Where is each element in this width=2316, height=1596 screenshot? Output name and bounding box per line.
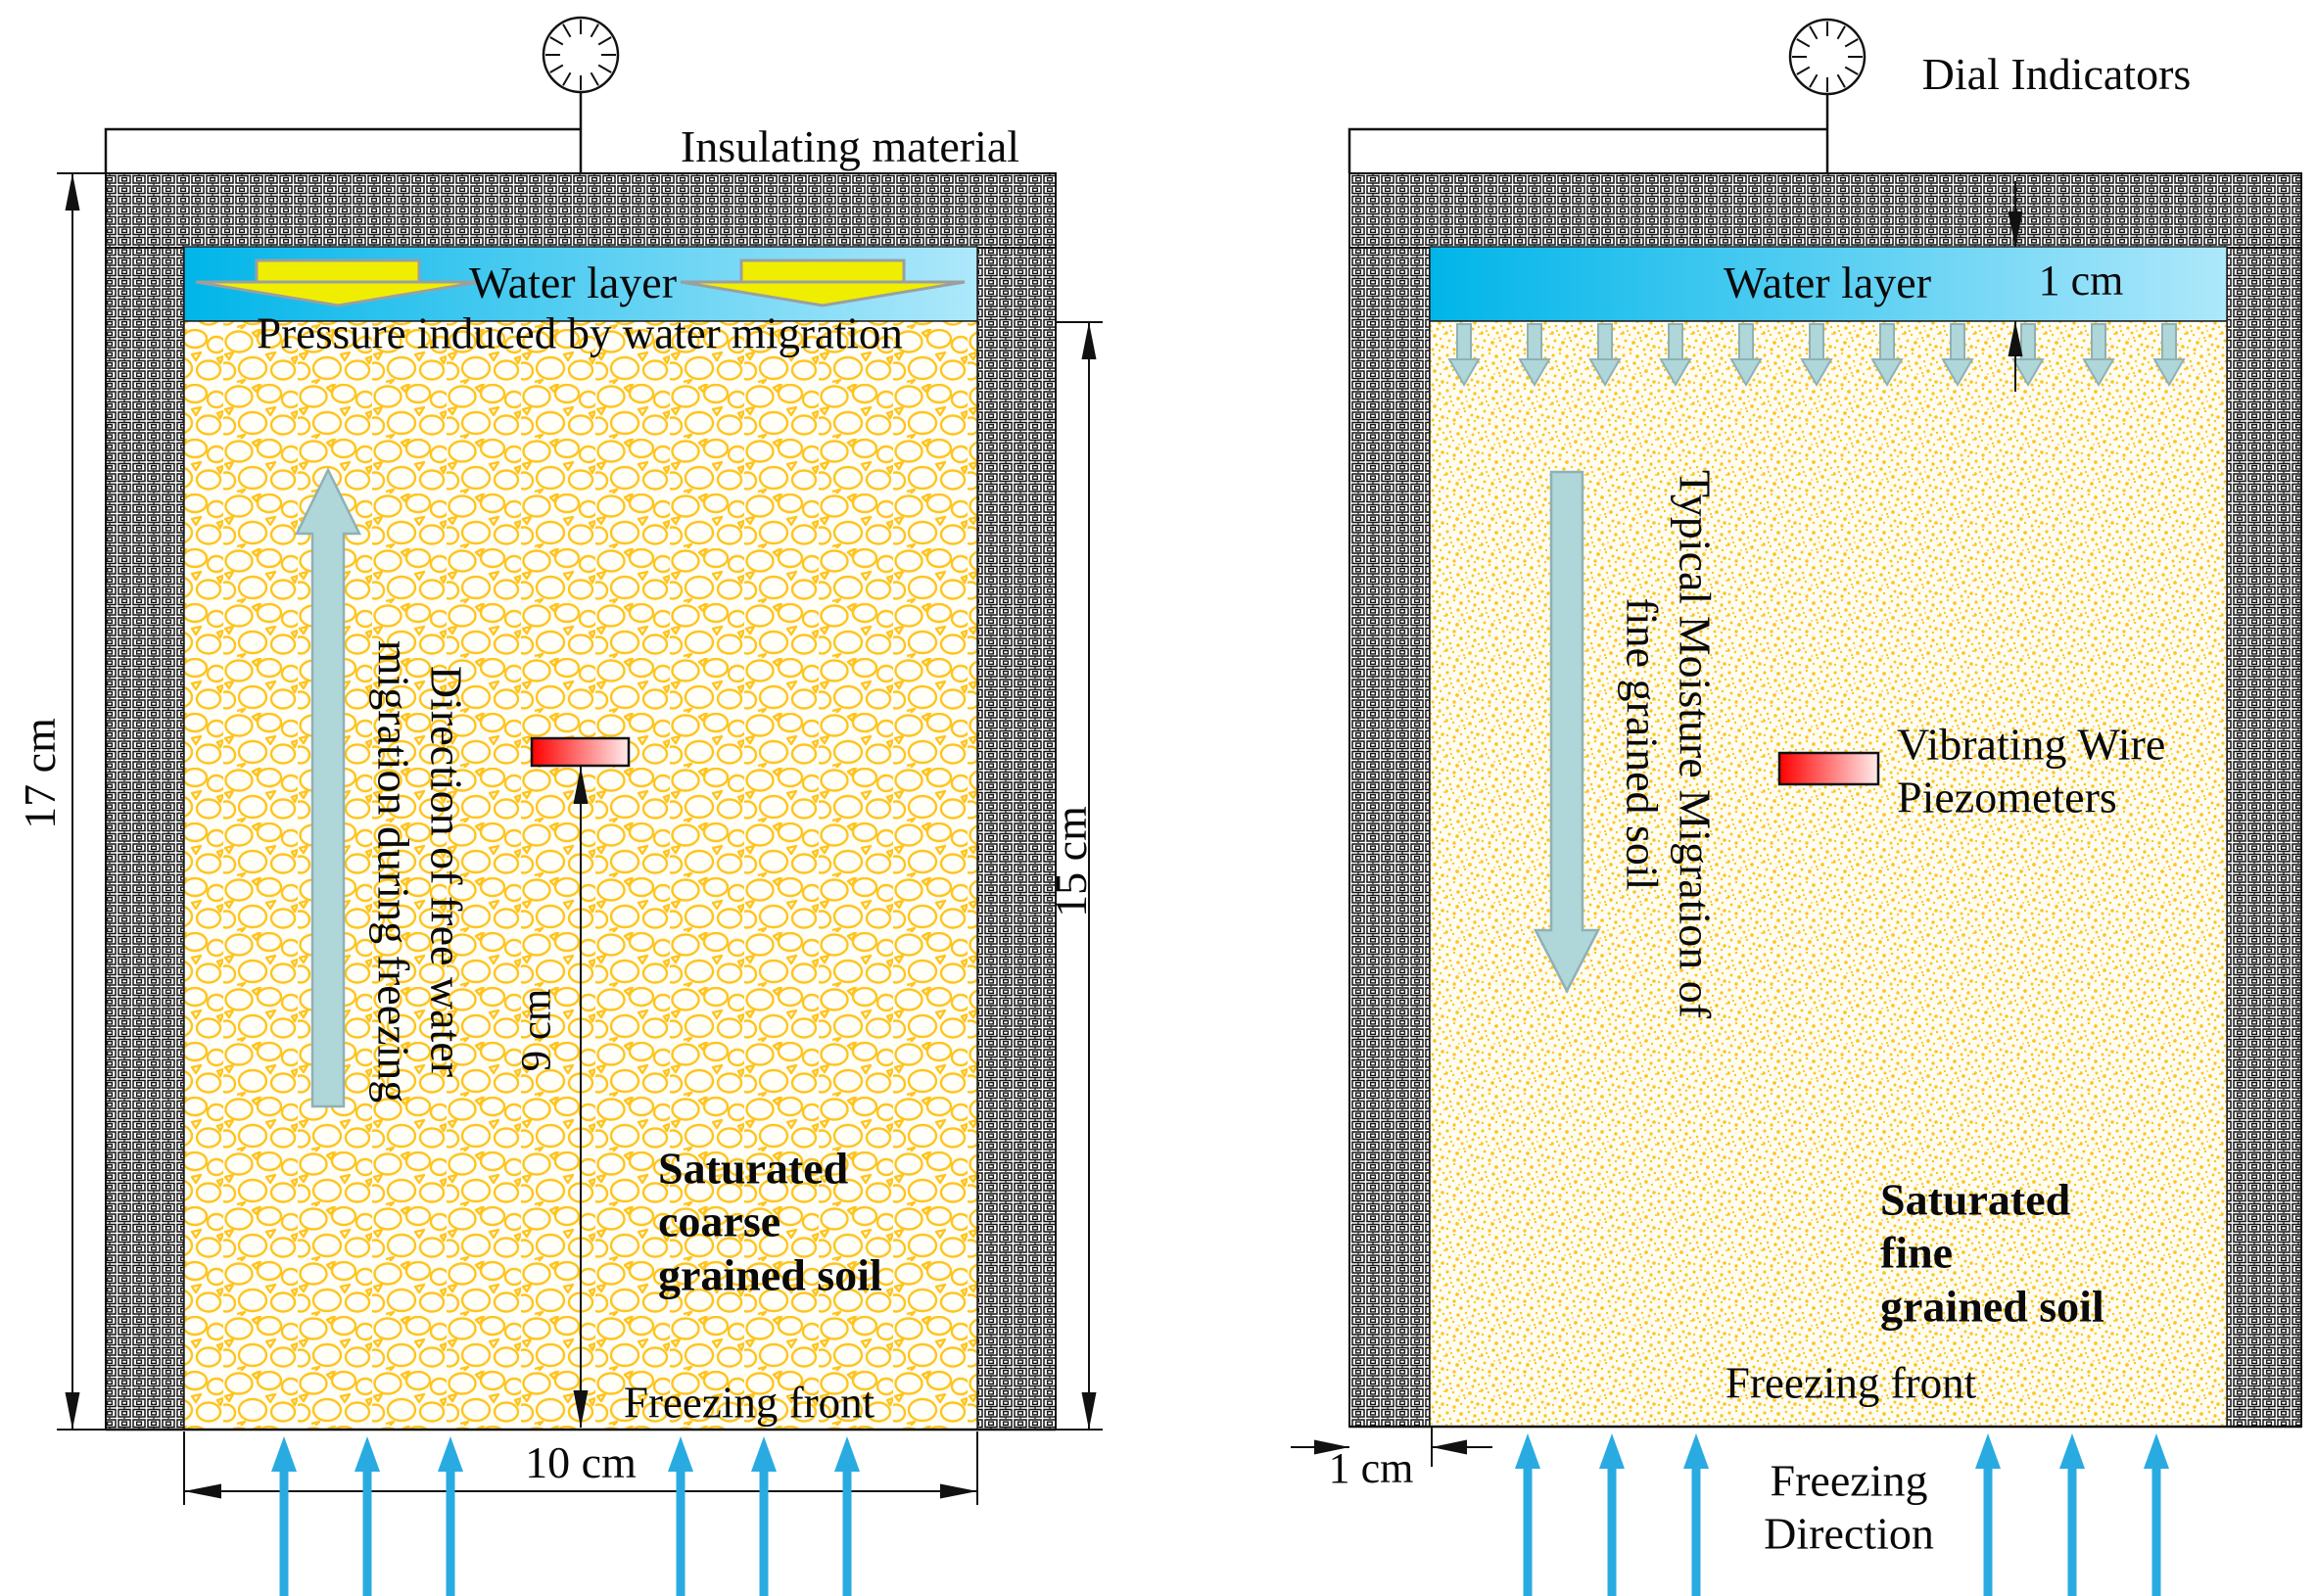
- left-apparatus: [57, 18, 1103, 1596]
- dim-9cm-label: 9 cm: [513, 989, 563, 1072]
- freezing-direction-label: Freezing Direction: [1764, 1455, 1934, 1562]
- freeze-arrow-icon: [1975, 1433, 2001, 1596]
- dial-indicators-label: Dial Indicators: [1922, 48, 2192, 101]
- migration-direction-label: Direction of free water migration during…: [366, 640, 473, 1103]
- coarse-soil-line2: coarse: [658, 1196, 882, 1248]
- fine-soil-line2: fine: [1880, 1227, 2104, 1280]
- right-right-wall: [2227, 248, 2301, 1427]
- right-top-wall: [1349, 173, 2301, 248]
- moisture-migration-label: Typical Moisture Migration of fine grain…: [1615, 470, 1722, 1018]
- freeze-arrow-icon: [2144, 1433, 2169, 1596]
- freezing-direction-line2: Direction: [1764, 1508, 1934, 1561]
- freeze-arrow-icon: [1683, 1433, 1709, 1596]
- dim-17cm-label: 17 cm: [14, 718, 67, 829]
- freeze-arrow-icon: [834, 1436, 860, 1596]
- freezing-direction-line1: Freezing: [1764, 1455, 1934, 1508]
- piezometer-label-line1: Vibrating Wire: [1897, 719, 2165, 772]
- left-left-wall: [106, 248, 184, 1430]
- left-top-wall: [106, 173, 1056, 248]
- left-water-layer-label: Water layer: [469, 257, 677, 309]
- coarse-soil-line3: grained soil: [658, 1248, 882, 1301]
- pressure-label: Pressure induced by water migration: [257, 307, 903, 359]
- dim-10cm-label: 10 cm: [525, 1436, 637, 1489]
- freeze-arrow-icon: [668, 1436, 693, 1596]
- left-freezing-front-label: Freezing front: [624, 1377, 874, 1429]
- freeze-arrow-icon: [1599, 1433, 1625, 1596]
- fine-soil-line1: Saturated: [1880, 1174, 2104, 1227]
- dial-gauge-icon: [544, 18, 618, 92]
- freeze-arrow-icon: [438, 1436, 463, 1596]
- dim-1cm-water-label: 1 cm: [2039, 256, 2124, 306]
- dim-15cm-label: 15 cm: [1045, 806, 1098, 917]
- migration-direction-line1: Direction of free water: [419, 640, 472, 1103]
- fine-soil-label: Saturated fine grained soil: [1880, 1174, 2104, 1334]
- freeze-arrow-icon: [2059, 1433, 2085, 1596]
- left-lid-outline: [106, 129, 581, 173]
- moisture-migration-line2: fine grained soil: [1615, 470, 1668, 1018]
- piezometer-label: Vibrating Wire Piezometers: [1897, 719, 2165, 825]
- moisture-migration-line1: Typical Moisture Migration of: [1668, 470, 1721, 1018]
- piezometer-label-line2: Piezometers: [1897, 772, 2165, 824]
- insulating-material-label: Insulating material: [681, 120, 1019, 173]
- left-piezometer: [532, 738, 629, 766]
- right-left-wall: [1349, 248, 1430, 1427]
- figure-canvas: Insulating material Water layer Pressure…: [0, 0, 2316, 1596]
- dial-gauge-icon: [1790, 20, 1865, 94]
- freeze-arrow-icon: [1515, 1433, 1540, 1596]
- dim-1cm-wall-label: 1 cm: [1329, 1443, 1414, 1494]
- right-piezometer: [1779, 753, 1878, 784]
- migration-direction-line2: migration during freezing: [366, 640, 419, 1103]
- fine-soil-body: [1430, 321, 2227, 1427]
- freeze-arrow-icon: [354, 1436, 380, 1596]
- coarse-soil-label: Saturated coarse grained soil: [658, 1143, 882, 1302]
- right-water-layer-label: Water layer: [1724, 257, 1931, 309]
- right-freezing-front-label: Freezing front: [1725, 1357, 1976, 1409]
- freeze-arrow-icon: [751, 1436, 777, 1596]
- freeze-arrow-icon: [271, 1436, 297, 1596]
- fine-soil-line3: grained soil: [1880, 1280, 2104, 1333]
- right-lid-outline: [1349, 129, 1827, 173]
- coarse-soil-line1: Saturated: [658, 1143, 882, 1196]
